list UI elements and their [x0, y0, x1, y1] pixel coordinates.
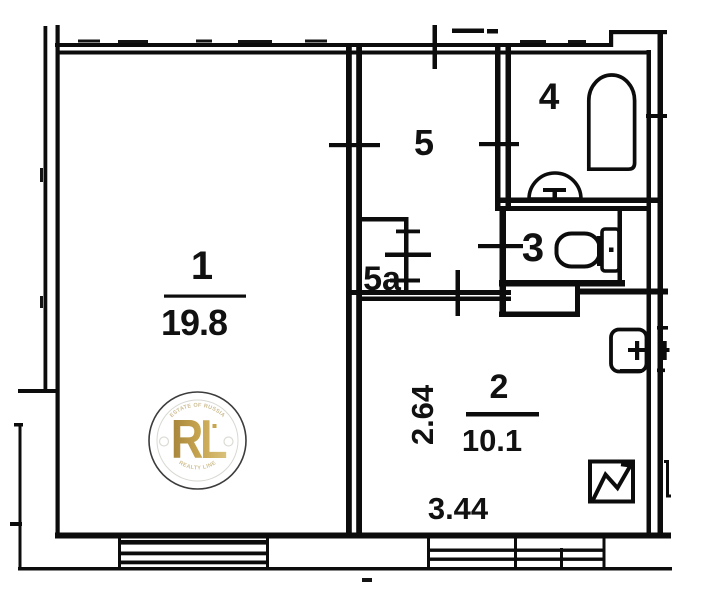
svg-text:3.44: 3.44 — [428, 491, 489, 526]
svg-text:3: 3 — [522, 226, 544, 270]
svg-text:5a: 5a — [363, 260, 402, 298]
svg-text:1: 1 — [191, 244, 213, 288]
svg-text:2: 2 — [490, 368, 509, 406]
svg-text:10.1: 10.1 — [462, 423, 522, 458]
svg-text:5: 5 — [414, 122, 434, 163]
svg-text:4: 4 — [539, 76, 560, 117]
svg-text:RL: RL — [171, 408, 227, 470]
svg-text:2.64: 2.64 — [405, 384, 440, 445]
svg-text:19.8: 19.8 — [161, 302, 227, 343]
